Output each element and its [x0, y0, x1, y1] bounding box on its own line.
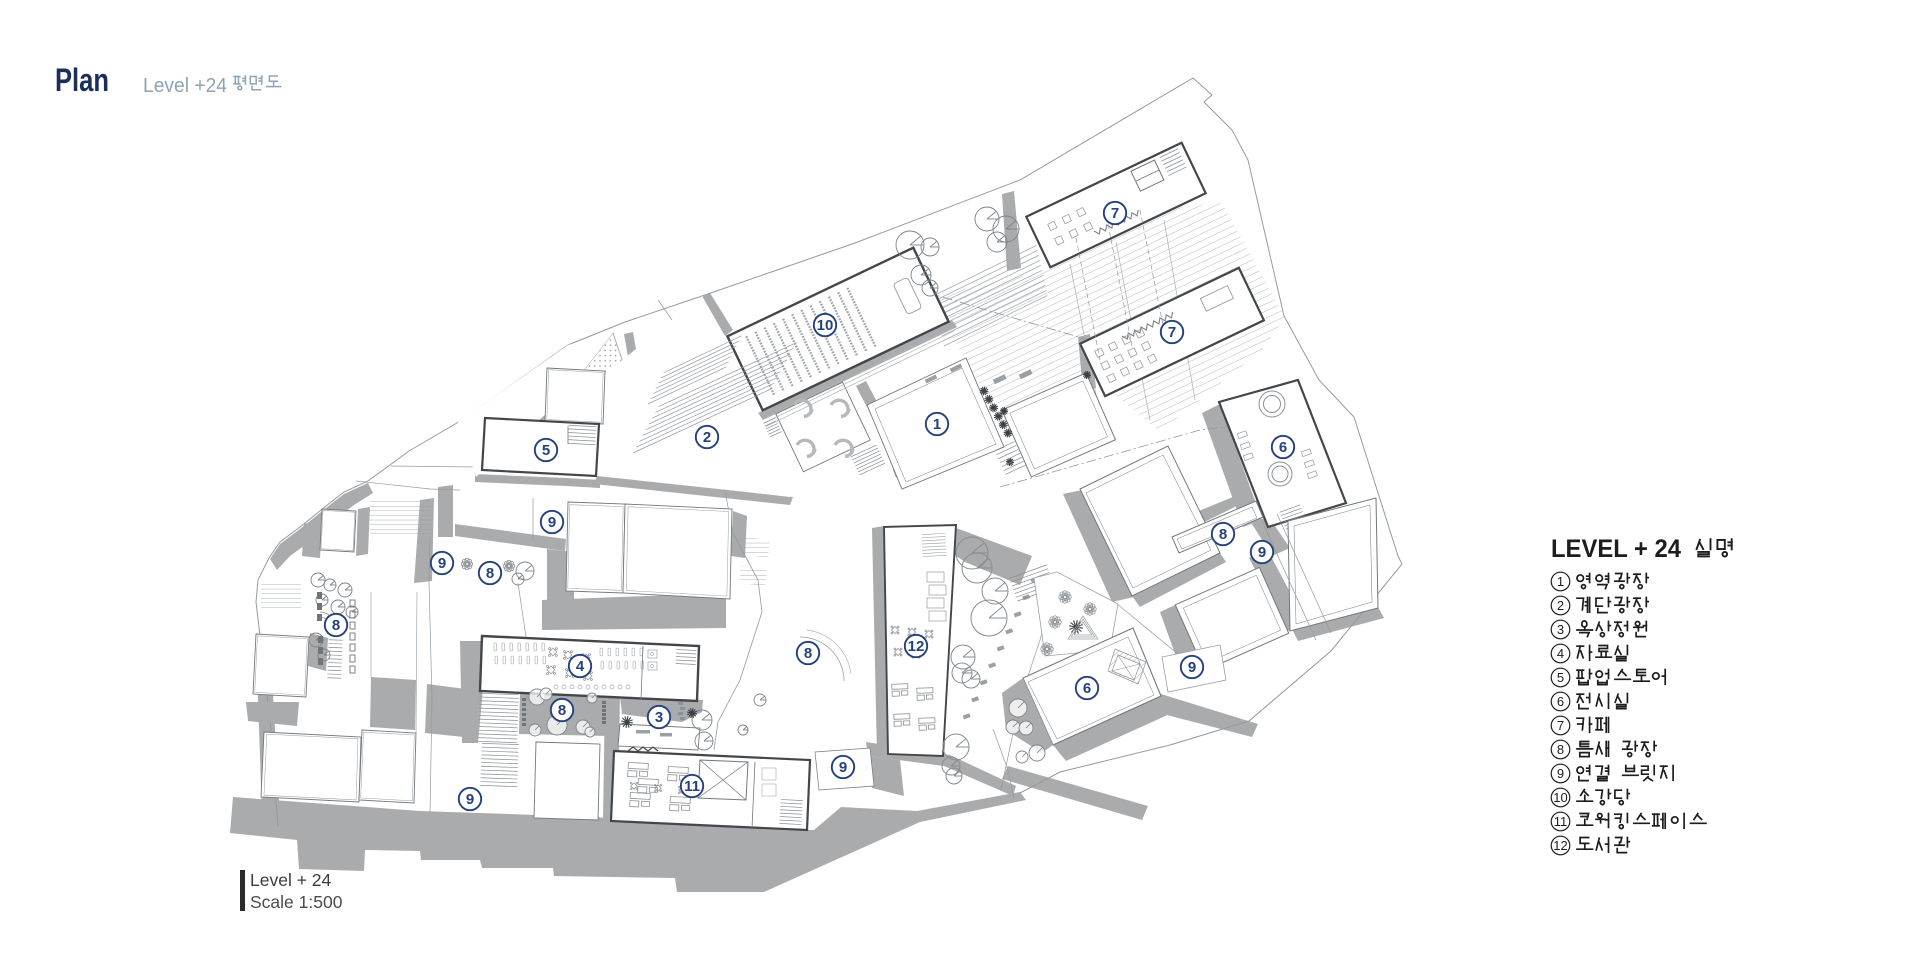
svg-text:1: 1 — [933, 416, 941, 433]
svg-text:11: 11 — [684, 778, 700, 795]
svg-text:6: 6 — [1083, 680, 1091, 697]
svg-text:12: 12 — [1553, 838, 1567, 853]
svg-text:7: 7 — [1111, 205, 1119, 222]
svg-text:9: 9 — [438, 555, 446, 572]
svg-text:11: 11 — [1554, 814, 1568, 829]
svg-text:10: 10 — [1553, 790, 1567, 805]
svg-text:1: 1 — [1557, 574, 1564, 589]
svg-text:Scale 1:500: Scale 1:500 — [250, 892, 343, 912]
svg-text:8: 8 — [558, 702, 566, 719]
svg-text:3: 3 — [1557, 622, 1564, 637]
svg-text:10: 10 — [817, 317, 834, 334]
svg-text:8: 8 — [486, 565, 494, 582]
svg-text:9: 9 — [548, 514, 556, 531]
svg-text:4: 4 — [1557, 646, 1564, 661]
svg-text:8: 8 — [804, 645, 812, 662]
svg-text:9: 9 — [839, 759, 847, 776]
svg-text:Level +24: Level +24 — [143, 74, 227, 97]
svg-text:2: 2 — [703, 429, 711, 446]
svg-text:8: 8 — [332, 617, 340, 634]
svg-text:Plan: Plan — [55, 62, 109, 98]
svg-text:Level + 24: Level + 24 — [250, 870, 332, 890]
svg-text:7: 7 — [1168, 324, 1176, 341]
svg-text:9: 9 — [1557, 766, 1564, 781]
svg-text:8: 8 — [1219, 526, 1227, 543]
svg-text:6: 6 — [1279, 439, 1287, 456]
svg-text:7: 7 — [1557, 718, 1564, 733]
svg-text:12: 12 — [908, 638, 925, 655]
svg-text:5: 5 — [542, 442, 550, 459]
svg-text:9: 9 — [1188, 659, 1196, 676]
svg-text:6: 6 — [1557, 694, 1564, 709]
svg-text:8: 8 — [1557, 742, 1564, 757]
svg-text:LEVEL + 24: LEVEL + 24 — [1551, 535, 1681, 563]
svg-text:2: 2 — [1557, 598, 1564, 613]
svg-text:9: 9 — [1258, 544, 1266, 561]
svg-text:3: 3 — [655, 709, 663, 726]
svg-text:9: 9 — [466, 791, 474, 808]
svg-text:4: 4 — [576, 658, 585, 675]
svg-text:5: 5 — [1557, 670, 1564, 685]
